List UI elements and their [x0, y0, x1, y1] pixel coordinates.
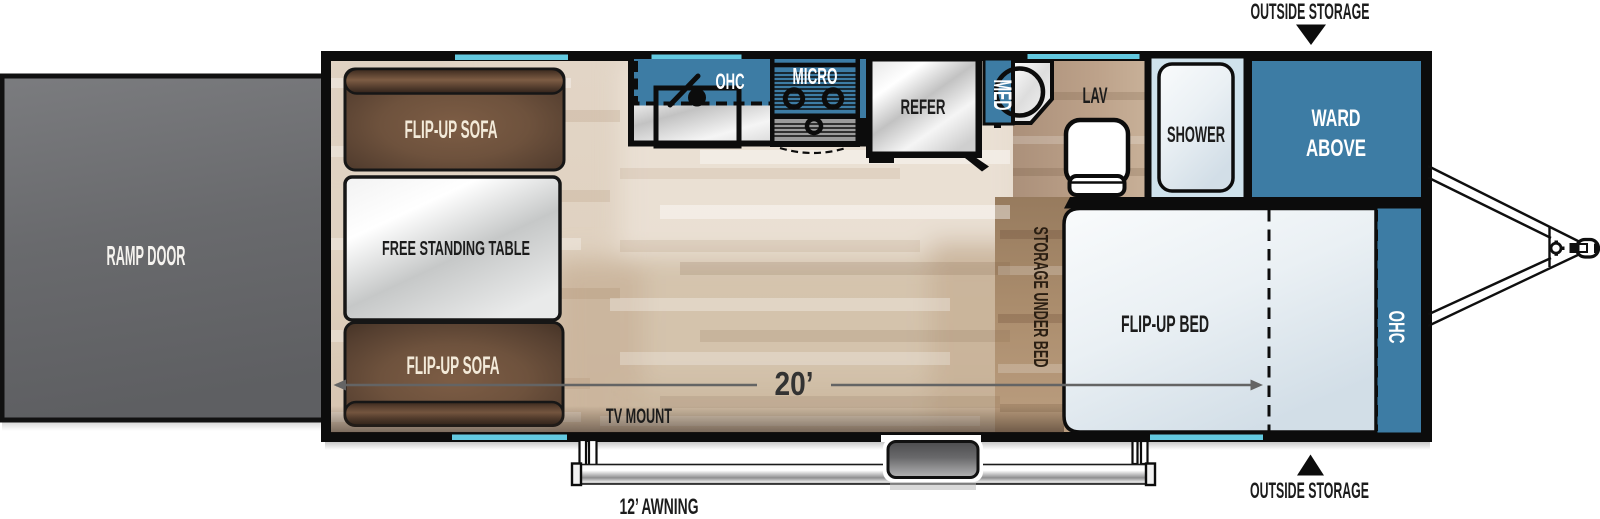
svg-text:STORAGE UNDER BED: STORAGE UNDER BED [1029, 227, 1051, 368]
svg-text:MED: MED [988, 80, 1016, 111]
svg-text:ABOVE: ABOVE [1306, 135, 1366, 162]
svg-text:LAV: LAV [1083, 83, 1108, 108]
svg-text:WARD: WARD [1312, 105, 1361, 132]
svg-text:OUTSIDE STORAGE: OUTSIDE STORAGE [1251, 0, 1370, 24]
svg-text:MICRO: MICRO [793, 63, 838, 89]
svg-text:12’ AWNING: 12’ AWNING [620, 494, 699, 519]
svg-text:FREE STANDING TABLE: FREE STANDING TABLE [382, 238, 530, 260]
svg-text:SHOWER: SHOWER [1167, 122, 1225, 147]
svg-text:20’: 20’ [775, 365, 814, 402]
svg-text:OHC: OHC [1384, 311, 1409, 344]
svg-text:FLIP-UP SOFA: FLIP-UP SOFA [405, 116, 498, 144]
svg-text:RAMP DOOR: RAMP DOOR [107, 240, 186, 271]
svg-text:FLIP-UP BED: FLIP-UP BED [1121, 311, 1209, 338]
svg-text:FLIP-UP SOFA: FLIP-UP SOFA [407, 352, 500, 380]
svg-text:OUTSIDE STORAGE: OUTSIDE STORAGE [1250, 478, 1369, 503]
svg-text:REFER: REFER [901, 96, 946, 119]
svg-text:OHC: OHC [716, 69, 745, 94]
svg-text:TV MOUNT: TV MOUNT [606, 405, 672, 428]
